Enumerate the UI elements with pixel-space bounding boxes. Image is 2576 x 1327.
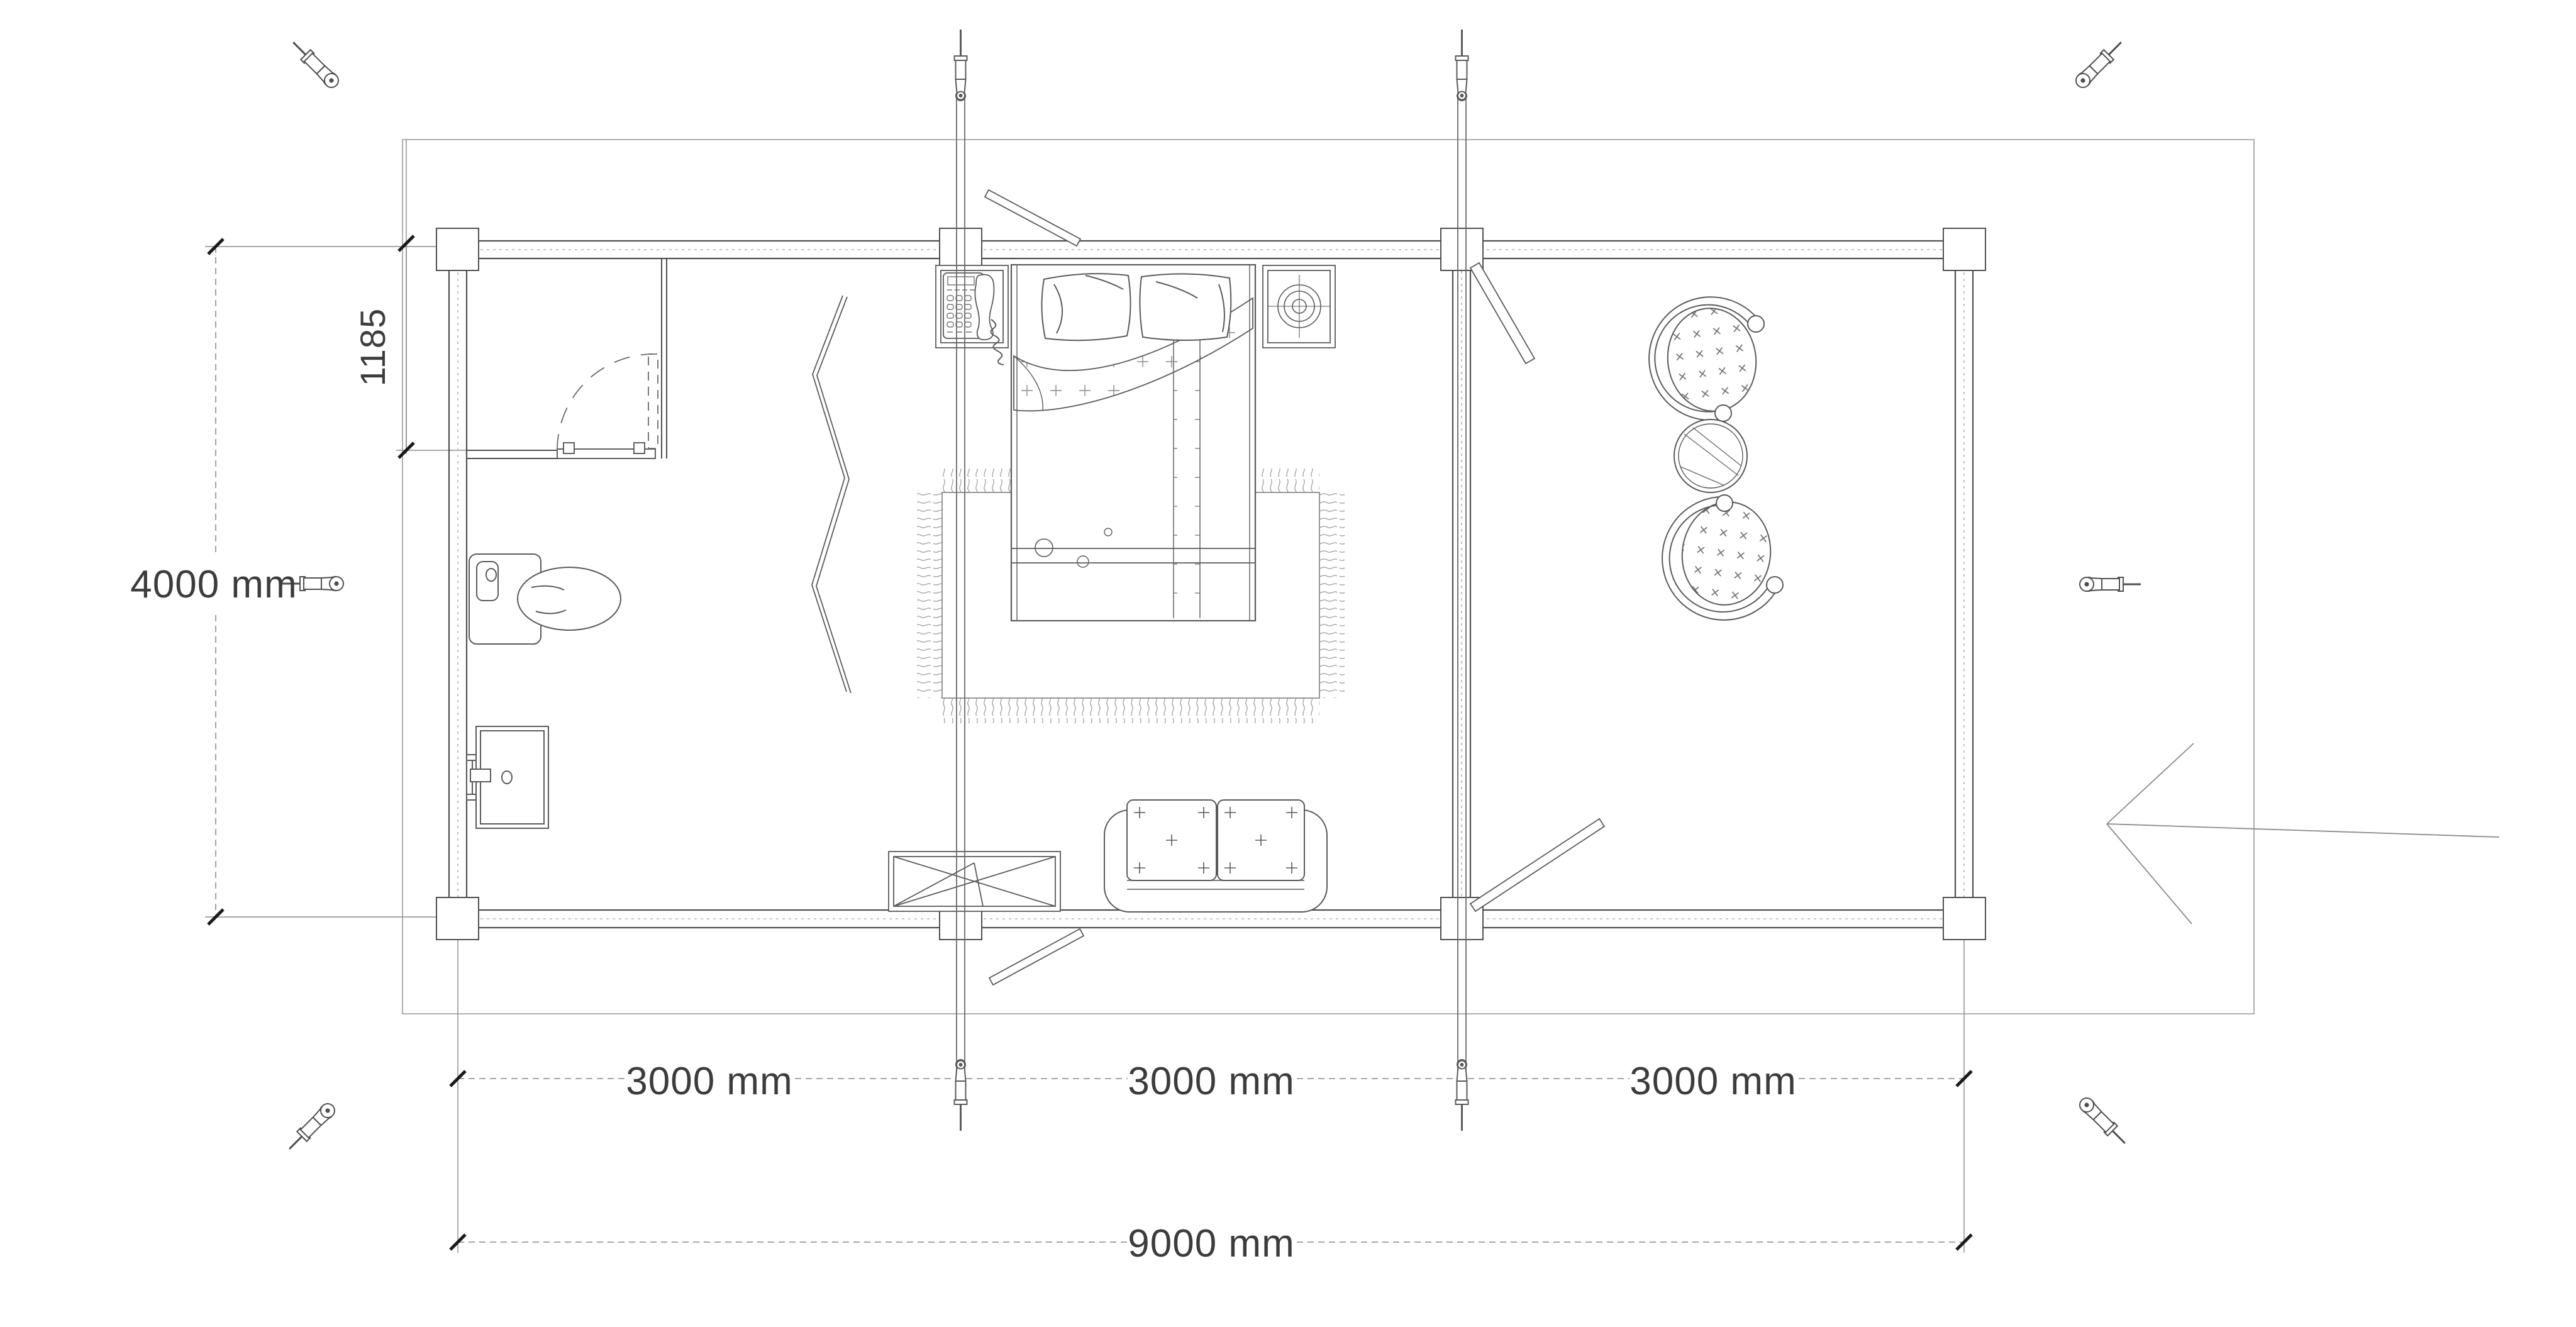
sink [467,726,548,828]
closet [467,258,667,458]
closet-door [557,354,658,458]
bed [1011,265,1255,621]
armchair-bottom [1662,495,1783,620]
armrest-spiral [1715,405,1731,421]
toilet [469,554,621,644]
floor-plan-drawing: 3000 mm 3000 mm 3000 mm 9000 mm 4000 mm … [0,0,2576,1327]
armrest-spiral [1767,577,1783,593]
screw-icon-top-right [2073,37,2126,90]
zigzag-partition [812,296,851,693]
dimension-label-closet-depth: 1185 [353,308,392,386]
top-exterior-door-leaf [985,190,1080,246]
dimension-label-depth: 4000 mm [130,563,297,606]
closet-door-swing-arc [557,354,653,450]
folding-table [889,852,1060,911]
screw-icon-mid-right [2080,577,2141,591]
interior-bottom-door-leaf [1470,819,1604,911]
dimension-label-bay1: 3000 mm [626,1060,792,1103]
screw-icon-bottom-right [2077,1095,2129,1148]
dimension-label-bay2: 3000 mm [1128,1060,1294,1103]
sofa [1104,800,1327,912]
bottom-exterior-door-leaf [989,929,1084,985]
floor-plan-canvas: 3000 mm 3000 mm 3000 mm 9000 mm 4000 mm … [0,0,2576,1327]
closet-door-leaf [648,354,658,448]
dimension-label-bay3: 3000 mm [1629,1060,1796,1103]
dimension-label-total-width: 9000 mm [1128,1222,1294,1265]
screw-icon-bottom-left [284,1101,337,1153]
armrest-spiral [1748,316,1764,332]
interior-top-door-leaf [1470,263,1535,364]
round-table [1674,419,1747,492]
entrance-arrow [2107,743,2499,924]
screw-icon-top-left [288,37,341,90]
armrest-spiral [1716,495,1733,511]
armchair-top [1649,297,1764,421]
